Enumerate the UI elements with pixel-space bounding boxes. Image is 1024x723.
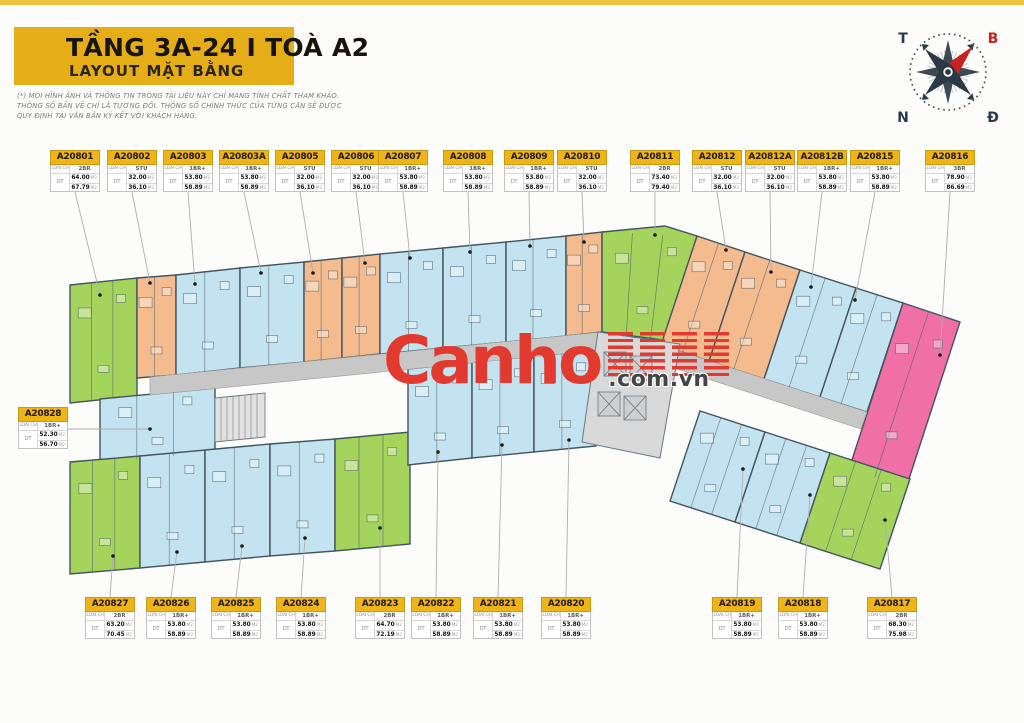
unit-shape-A20827: [70, 456, 140, 574]
unit-shape-A20826: [140, 450, 205, 568]
unit-shape-A20824: [270, 439, 335, 556]
compass-north-label: B: [988, 31, 999, 47]
disclaimer-line: (*) MỌI HÌNH ẢNH VÀ THÔNG TIN TRONG TÀI …: [17, 92, 342, 102]
compass-icon: T B N Đ: [878, 12, 1012, 134]
label-connector-A20822: [436, 452, 438, 597]
label-connector-A20805: [300, 192, 313, 273]
label-connector-A20815: [855, 192, 875, 300]
page-title: TẦNG 3A-24 I TOÀ A2: [66, 33, 294, 62]
unit-shape-A20801: [70, 278, 137, 403]
page-header: TẦNG 3A-24 I TOÀ A2 LAYOUT MẶT BẰNG: [14, 27, 294, 85]
label-connector-A20809: [529, 192, 530, 246]
label-connector-A20808: [468, 192, 470, 252]
compass-south-label: N: [897, 110, 909, 126]
label-connector-A20807: [403, 192, 410, 258]
stairs-block: [215, 393, 265, 442]
watermark-brand: Canho: [383, 330, 600, 393]
watermark: Canho .com.vn: [383, 330, 729, 393]
label-connector-A20820: [566, 440, 569, 597]
label-connector-A20802: [132, 192, 150, 283]
unit-shape-A20825: [205, 444, 270, 562]
unit-shape-A20803: [176, 268, 240, 375]
label-connector-A20803: [188, 192, 195, 284]
label-connector-A20812: [717, 192, 726, 250]
disclaimer-line: THÔNG SỐ BẢN VẼ CHỈ LÀ TƯƠNG ĐỐI. THÔNG …: [17, 102, 342, 112]
label-connector-A20812B: [811, 192, 822, 287]
disclaimer-line: QUY ĐỊNH TẠI VĂN BẢN KÝ KẾT VỚI KHÁCH HÀ…: [17, 112, 342, 122]
label-connector-A20806: [356, 192, 365, 263]
disclaimer: (*) MỌI HÌNH ẢNH VÀ THÔNG TIN TRONG TÀI …: [17, 92, 342, 122]
page-subtitle: LAYOUT MẶT BẰNG: [69, 62, 294, 80]
label-connector-A20821: [498, 445, 502, 597]
unit-shape-A20803A: [240, 262, 304, 368]
watermark-domain: .com.vn: [608, 367, 729, 392]
compass-west-label: T: [898, 31, 908, 47]
label-connector-A20801: [75, 192, 100, 295]
compass-east-label: Đ: [987, 110, 999, 126]
unit-shape-A20823: [335, 432, 410, 551]
label-connector-A20803A: [244, 192, 261, 273]
